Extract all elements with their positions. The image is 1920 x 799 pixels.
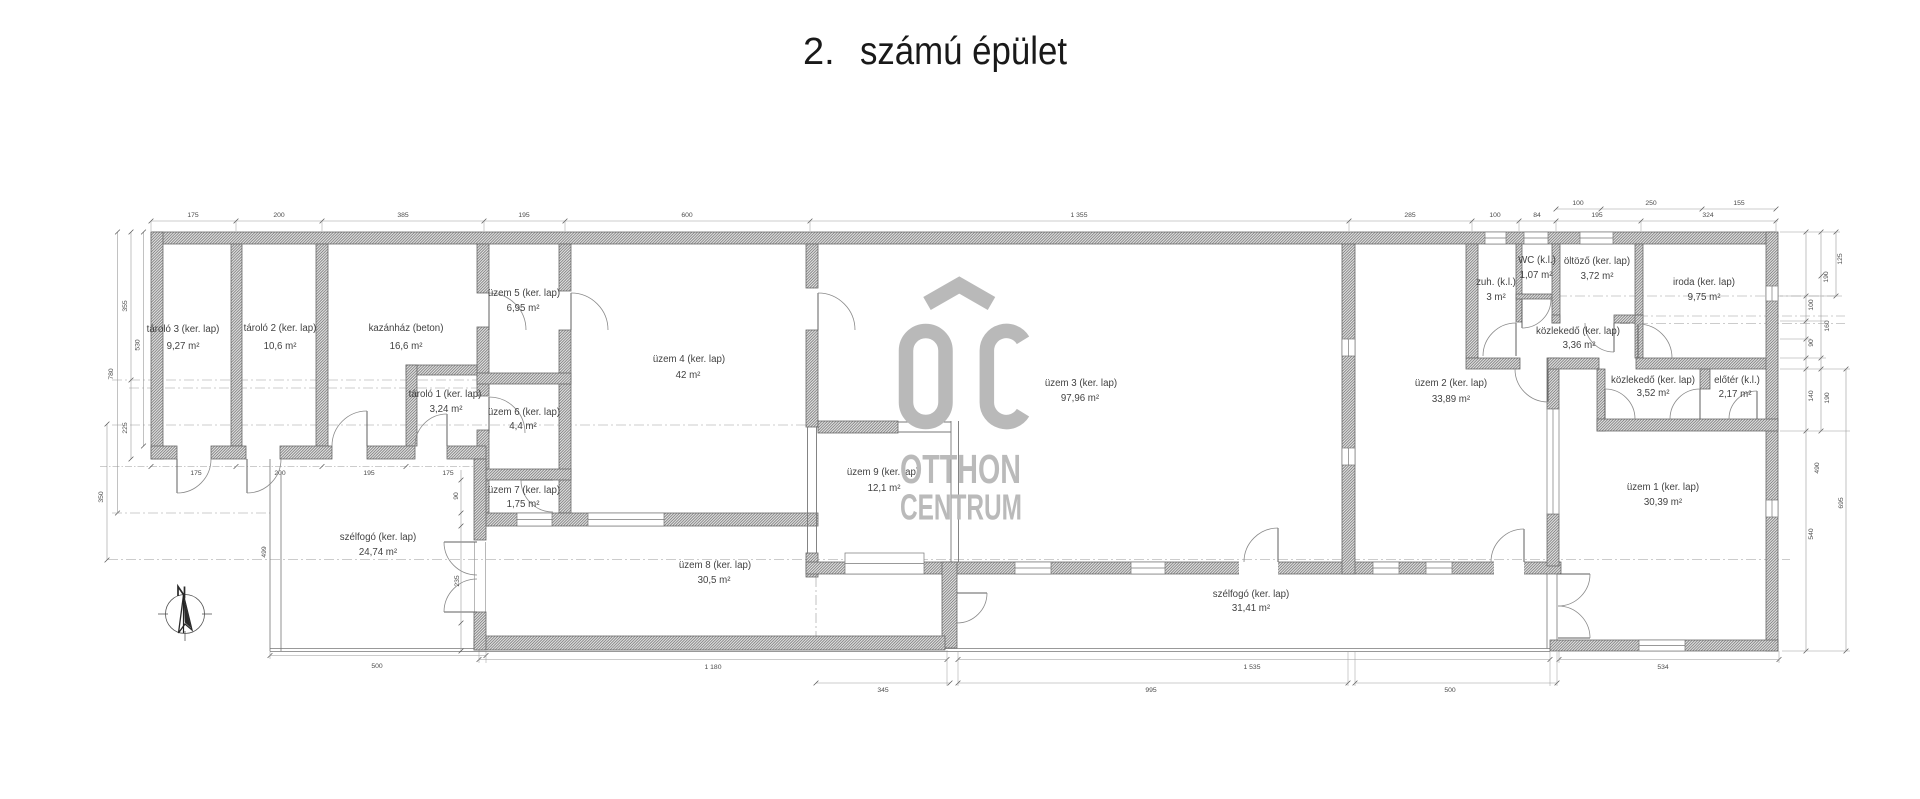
svg-text:10,6 m²: 10,6 m²	[264, 341, 298, 352]
svg-text:12,1 m²: 12,1 m²	[868, 483, 902, 494]
svg-text:175: 175	[442, 470, 454, 477]
svg-text:200: 200	[274, 470, 286, 477]
svg-text:324: 324	[1702, 212, 1714, 219]
svg-text:500: 500	[371, 663, 383, 670]
svg-text:3,72 m²: 3,72 m²	[1581, 271, 1615, 282]
svg-text:tároló 1 (ker. lap): tároló 1 (ker. lap)	[409, 389, 482, 400]
svg-text:üzem 2 (ker. lap): üzem 2 (ker. lap)	[1415, 378, 1487, 389]
svg-text:42 m²: 42 m²	[676, 370, 702, 381]
svg-text:175: 175	[190, 470, 202, 477]
svg-text:540: 540	[1808, 528, 1815, 540]
svg-text:200: 200	[273, 212, 285, 219]
svg-text:190: 190	[1824, 392, 1831, 404]
svg-text:100: 100	[1572, 200, 1584, 207]
svg-text:öltöző (ker. lap): öltöző (ker. lap)	[1564, 256, 1630, 267]
svg-text:4,4 m²: 4,4 m²	[509, 421, 537, 432]
svg-text:3,24 m²: 3,24 m²	[430, 404, 464, 415]
svg-text:24,74 m²: 24,74 m²	[359, 547, 398, 558]
svg-text:1 180: 1 180	[704, 664, 721, 671]
svg-text:175: 175	[187, 212, 199, 219]
svg-text:3,36 m²: 3,36 m²	[1563, 340, 1597, 351]
svg-text:szélfogó (ker. lap): szélfogó (ker. lap)	[340, 532, 416, 543]
svg-text:1,07 m²: 1,07 m²	[1520, 270, 1554, 281]
svg-text:125: 125	[1837, 253, 1844, 265]
svg-text:CENTRUM: CENTRUM	[900, 487, 1022, 528]
svg-text:üzem 1 (ker. lap): üzem 1 (ker. lap)	[1627, 482, 1699, 493]
svg-text:90: 90	[453, 492, 460, 500]
svg-text:385: 385	[397, 212, 409, 219]
svg-text:közlekedő (ker. lap): közlekedő (ker. lap)	[1536, 326, 1620, 337]
svg-text:30,5 m²: 30,5 m²	[698, 575, 732, 586]
svg-text:600: 600	[681, 212, 693, 219]
svg-text:140: 140	[1808, 390, 1815, 402]
svg-text:kazánház (beton): kazánház (beton)	[369, 323, 444, 334]
svg-text:üzem 8 (ker. lap): üzem 8 (ker. lap)	[679, 560, 751, 571]
svg-text:közlekedő (ker. lap): közlekedő (ker. lap)	[1611, 375, 1695, 386]
svg-text:190: 190	[1823, 271, 1830, 283]
svg-text:31,41 m²: 31,41 m²	[1232, 603, 1271, 614]
svg-text:195: 195	[363, 470, 375, 477]
svg-text:155: 155	[1733, 200, 1745, 207]
svg-text:előtér (k.l.): előtér (k.l.)	[1714, 375, 1760, 386]
svg-text:1 535: 1 535	[1243, 664, 1260, 671]
svg-text:1,75 m²: 1,75 m²	[507, 499, 541, 510]
svg-text:250: 250	[1645, 200, 1657, 207]
svg-text:84: 84	[1533, 212, 1541, 219]
svg-text:9,75 m²: 9,75 m²	[1688, 292, 1722, 303]
svg-text:OTTHON: OTTHON	[900, 446, 1021, 492]
svg-text:1 355: 1 355	[1070, 212, 1087, 219]
svg-text:üzem 4 (ker. lap): üzem 4 (ker. lap)	[653, 354, 725, 365]
svg-text:530: 530	[135, 339, 142, 351]
svg-text:195: 195	[518, 212, 530, 219]
svg-text:6,95 m²: 6,95 m²	[507, 303, 541, 314]
svg-text:WC (k.l.): WC (k.l.)	[1518, 255, 1556, 266]
svg-text:195: 195	[1591, 212, 1603, 219]
svg-text:30,39 m²: 30,39 m²	[1644, 497, 1683, 508]
svg-text:355: 355	[122, 300, 129, 312]
svg-text:235: 235	[454, 575, 461, 587]
svg-text:szélfogó (ker. lap): szélfogó (ker. lap)	[1213, 589, 1289, 600]
svg-text:üzem 7 (ker. lap): üzem 7 (ker. lap)	[488, 485, 560, 496]
svg-text:üzem 3 (ker. lap): üzem 3 (ker. lap)	[1045, 378, 1117, 389]
svg-text:tároló 3 (ker. lap): tároló 3 (ker. lap)	[147, 324, 220, 335]
svg-text:499: 499	[261, 546, 268, 558]
svg-text:tároló 2 (ker. lap): tároló 2 (ker. lap)	[244, 323, 317, 334]
svg-text:285: 285	[1404, 212, 1416, 219]
svg-text:345: 345	[877, 687, 889, 694]
svg-text:100: 100	[1489, 212, 1501, 219]
svg-text:534: 534	[1657, 664, 1669, 671]
svg-text:160: 160	[1824, 320, 1831, 332]
svg-text:500: 500	[1444, 687, 1456, 694]
svg-text:695: 695	[1838, 497, 1845, 509]
svg-text:9,27 m²: 9,27 m²	[167, 341, 201, 352]
svg-text:780: 780	[108, 368, 115, 380]
svg-text:3 m²: 3 m²	[1486, 292, 1506, 303]
svg-text:490: 490	[1814, 462, 1821, 474]
svg-text:90: 90	[1808, 339, 1815, 347]
svg-text:33,89 m²: 33,89 m²	[1432, 394, 1471, 405]
svg-text:2.: 2.	[803, 31, 835, 73]
svg-text:225: 225	[122, 422, 129, 434]
svg-text:zuh. (k.l.): zuh. (k.l.)	[1476, 277, 1516, 288]
svg-text:üzem 5 (ker. lap): üzem 5 (ker. lap)	[488, 288, 560, 299]
svg-text:2,17 m²: 2,17 m²	[1719, 389, 1753, 400]
svg-text:16,6 m²: 16,6 m²	[390, 341, 424, 352]
svg-text:számú épület: számú épület	[860, 30, 1067, 73]
svg-text:97,96 m²: 97,96 m²	[1061, 393, 1100, 404]
svg-text:100: 100	[1808, 299, 1815, 311]
svg-text:üzem 6 (ker. lap): üzem 6 (ker. lap)	[488, 407, 560, 418]
svg-text:350: 350	[98, 491, 105, 503]
svg-text:iroda (ker. lap): iroda (ker. lap)	[1673, 277, 1735, 288]
svg-text:995: 995	[1145, 687, 1157, 694]
svg-text:3,52 m²: 3,52 m²	[1637, 388, 1671, 399]
